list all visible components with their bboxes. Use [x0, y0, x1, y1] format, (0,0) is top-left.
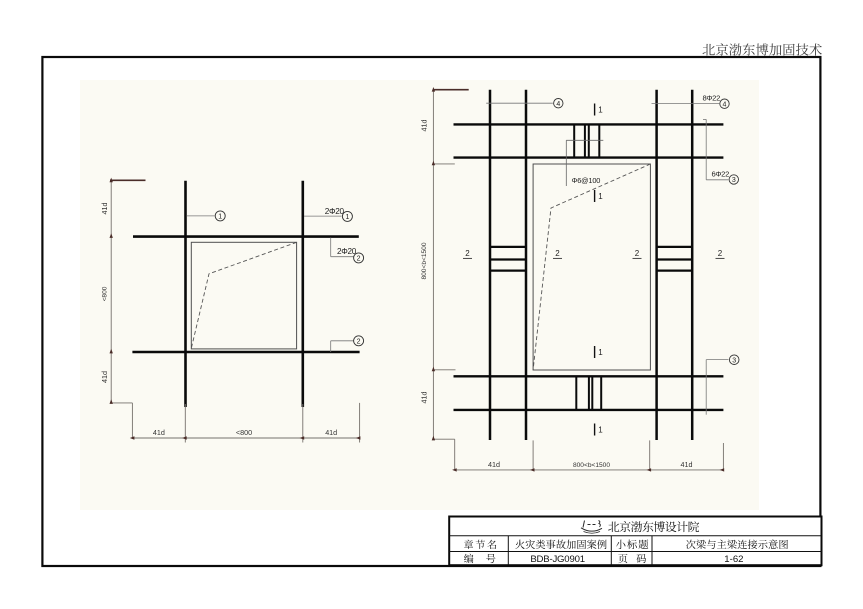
- svg-text:1: 1: [598, 106, 603, 115]
- svg-text:6Φ22: 6Φ22: [712, 169, 730, 178]
- svg-text:1: 1: [598, 426, 603, 435]
- svg-text:2: 2: [357, 256, 361, 263]
- svg-text:<800: <800: [101, 286, 108, 301]
- svg-text:41d: 41d: [153, 428, 165, 437]
- svg-text:41d: 41d: [681, 460, 693, 469]
- svg-text:1-62: 1-62: [724, 554, 743, 565]
- svg-text:2Φ20: 2Φ20: [325, 207, 345, 216]
- svg-text:2: 2: [357, 338, 361, 345]
- svg-text:41d: 41d: [488, 460, 500, 469]
- svg-text:2: 2: [555, 249, 560, 258]
- svg-text:2Φ20: 2Φ20: [337, 247, 357, 256]
- svg-text:41d: 41d: [325, 428, 337, 437]
- svg-text:1: 1: [218, 214, 222, 221]
- svg-text:2: 2: [465, 249, 470, 258]
- svg-text:3: 3: [732, 177, 736, 184]
- svg-text:4: 4: [723, 101, 727, 108]
- svg-text:1: 1: [598, 348, 603, 357]
- svg-text:41d: 41d: [100, 371, 109, 383]
- svg-text:4: 4: [556, 101, 560, 108]
- svg-text:1: 1: [598, 192, 603, 201]
- svg-text:<800: <800: [236, 428, 252, 437]
- svg-text:Φ6@100: Φ6@100: [572, 176, 601, 185]
- svg-text:1: 1: [345, 214, 349, 221]
- svg-text:800<b<1500: 800<b<1500: [573, 462, 610, 469]
- svg-text:41d: 41d: [420, 392, 429, 404]
- svg-text:8Φ22: 8Φ22: [703, 93, 721, 102]
- svg-text:41d: 41d: [100, 203, 109, 215]
- svg-text:2: 2: [718, 249, 723, 258]
- svg-text:2: 2: [635, 249, 640, 258]
- svg-text:BDB-JG0901: BDB-JG0901: [530, 554, 585, 565]
- svg-text:3: 3: [732, 357, 736, 364]
- svg-text:41d: 41d: [420, 120, 429, 132]
- svg-text:800<b<1500: 800<b<1500: [421, 242, 428, 279]
